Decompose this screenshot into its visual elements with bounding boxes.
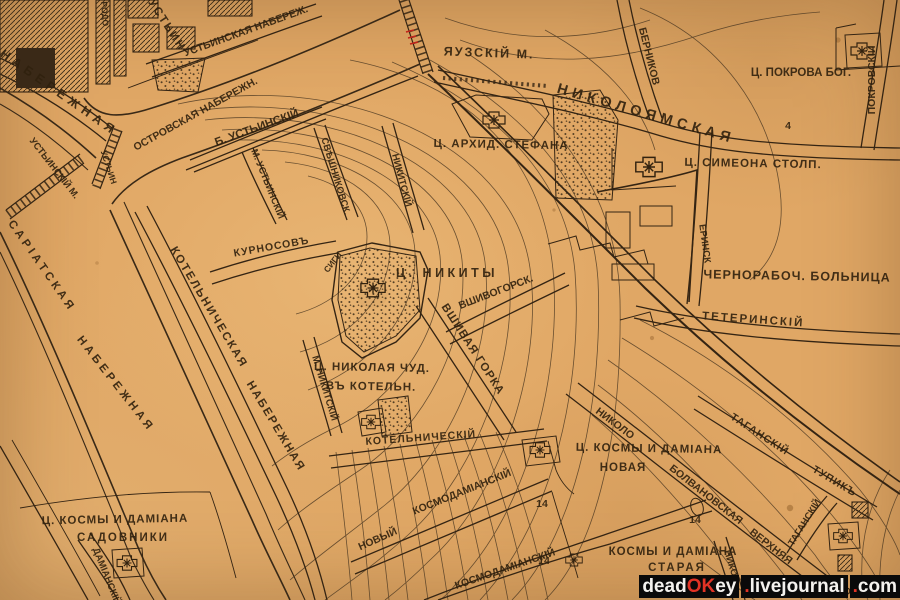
label-ts-arkhid-stefana: Ц. АРХИД. СТЕФАНА: [433, 138, 568, 152]
streets: [0, 0, 900, 600]
label-ustinsky-most: УСТЬИНСКІЙ М.: [27, 135, 82, 201]
buildings-hatched: [0, 0, 868, 571]
label-rodo: РОДО: [99, 1, 111, 27]
label-yauzsky-most: ЯУЗСКІЙ М.: [444, 43, 535, 61]
label-damiansky: ДАМІАНСКІЙ: [90, 546, 124, 600]
label-ust-corner: УСТЬ: [0, 0, 11, 2]
label-chernorab-bolnitsa: ЧЕРНОРАБОЧ. БОЛЬНИЦА: [703, 267, 890, 284]
label-ts-nikity: Ц. НИКИТЫ: [396, 266, 498, 280]
label-terinsk-vert: ЕРИНСК: [696, 224, 712, 264]
watermark-part-1: deadOKey: [639, 575, 739, 598]
label-sariat-nab: НАБЕРЕЖНАЯ: [74, 334, 156, 434]
watermark-part-3: .com: [850, 575, 900, 598]
label-ts-simeona: Ц. СИМЕОНА СТОЛП.: [684, 157, 822, 171]
label-teterinsky: ТЕТЕРИНСКІЙ: [702, 309, 805, 329]
label-ts-kosmy-sadovniki-2: САДОВНИКИ: [77, 532, 169, 544]
label-ts-kosmy-sadovniki-1: Ц. КОСМЫ И ДАМІАНА: [42, 513, 189, 528]
label-bolvanovskaya: БОЛВАНОВСКАЯ: [667, 462, 745, 527]
label-tagansky-vert: ТАГАНСКІЙ: [785, 497, 823, 548]
label-pokrovsky: ПОКРОВСКІЙ: [865, 46, 878, 115]
label-num-14-c: 14: [538, 555, 550, 567]
label-ts-kosmy-novaya-2: НОВАЯ: [600, 462, 647, 474]
label-ts-kosmy-staraya-1: КОСМЫ И ДАМІАНА: [609, 546, 738, 558]
label-num-14-a: 14: [536, 498, 548, 510]
watermark: deadOKey .livejournal .com: [639, 575, 900, 598]
label-num-14-b: 14: [689, 514, 701, 526]
label-ts-kosmy-staraya-2: СТАРАЯ: [648, 562, 706, 574]
label-kosmodamiansky-novy: КОСМОДАМІАНСКІЙ: [411, 466, 513, 517]
label-ts-kosmy-novaya-1: Ц. КОСМЫ И ДАМІАНА: [576, 442, 723, 457]
label-m-ustinsky: М. УСТЬИНСКІЙ: [248, 147, 287, 220]
label-kotelnicheskaya-nab-2: НАБЕРЕЖНАЯ: [244, 379, 307, 474]
map-svg: НАБЕРЕЖНАЯ УСТЬИНСКАЯ НАБЕРЕЖ. УСТЬИН УС…: [0, 0, 900, 600]
watermark-part-2: .livejournal: [741, 575, 847, 598]
label-ustin2: УСТЬИН: [99, 149, 119, 185]
label-ts-pokrova: Ц. ПОКРОВА БОГ.: [751, 67, 851, 79]
label-bernikov: БЕРНИКОВ: [636, 26, 662, 86]
label-vshivaya-gorka: ВШИВАЯ ГОРКА: [439, 302, 507, 397]
label-sveshnikovsk: СВѢШНИКОВСК.: [318, 136, 352, 216]
contour-lines: [178, 8, 900, 600]
label-ts-nikolaya-2: ВЪ КОТЕЛЬН.: [326, 380, 417, 394]
label-kurnosov: КУРНОСОВЪ: [233, 234, 311, 259]
map-canvas: НАБЕРЕЖНАЯ УСТЬИНСКАЯ НАБЕРЕЖ. УСТЬИН УС…: [0, 0, 900, 600]
label-num-4: 4: [785, 120, 791, 132]
label-ts-nikolaya-1: Ц. НИКОЛАЯ ЧУД.: [314, 361, 430, 375]
label-tupik: ТУПИКЪ: [810, 464, 859, 500]
